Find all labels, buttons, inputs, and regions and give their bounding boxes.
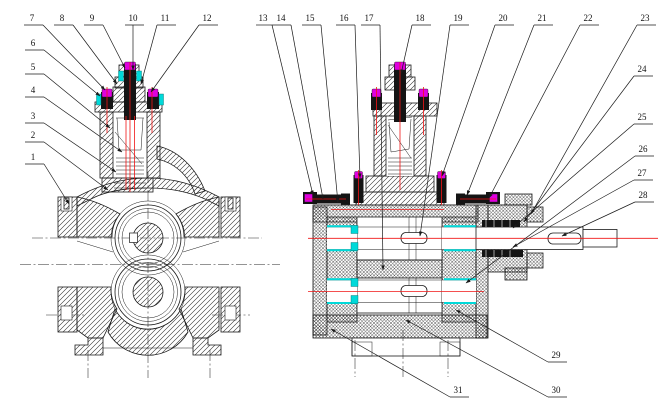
side-plug-left	[303, 192, 350, 205]
callout-15: 15	[302, 13, 338, 203]
callout-10: 10	[125, 13, 144, 70]
side-section-view	[303, 62, 658, 377]
callout-20: 20	[442, 13, 514, 176]
callout-14: 14	[272, 13, 323, 199]
bottom-wall	[313, 315, 487, 338]
seal-ring	[351, 226, 358, 234]
callout-31-label: 31	[454, 385, 463, 395]
callout-24-label: 24	[638, 64, 648, 74]
callout-27-label: 27	[638, 168, 648, 178]
callout-25-label: 25	[638, 112, 648, 122]
seal-ring	[351, 243, 358, 251]
callout-5-label: 5	[31, 62, 36, 72]
callout-2-label: 2	[31, 130, 36, 140]
callout-13: 13	[256, 13, 313, 195]
relief-valve-left	[95, 62, 205, 194]
callout-19-label: 19	[454, 13, 464, 23]
callout-8: 8	[54, 13, 117, 84]
callout-17-label: 17	[365, 13, 375, 23]
right-foot	[193, 338, 221, 355]
callout-2: 2	[25, 130, 108, 190]
callout-13-label: 13	[259, 13, 269, 23]
callout-30-label: 30	[552, 385, 562, 395]
callout-3-label: 3	[31, 111, 36, 121]
callout-15-label: 15	[306, 13, 316, 23]
driven-shaft-section	[133, 277, 163, 307]
callout-7-label: 7	[30, 13, 35, 23]
callout-10-label: 10	[129, 13, 139, 23]
seal-ring	[351, 279, 358, 287]
callout-29-label: 29	[552, 350, 562, 360]
shaft-key	[130, 233, 138, 243]
callout-14-label: 14	[277, 13, 287, 23]
relief-valve-right	[354, 62, 447, 205]
callout-23-label: 23	[641, 13, 651, 23]
callout-28-label: 28	[639, 190, 649, 200]
callout-16: 16	[336, 13, 360, 178]
callout-20-label: 20	[499, 13, 509, 23]
callout-9-label: 9	[90, 13, 95, 23]
driven-gear-side	[357, 278, 442, 313]
callout-8-label: 8	[60, 13, 65, 23]
left-foot	[75, 338, 103, 355]
callout-12-label: 12	[203, 13, 212, 23]
front-section-view	[20, 62, 280, 378]
callout-6-label: 6	[31, 38, 36, 48]
seal-ring	[351, 296, 358, 304]
side-plug-right	[456, 192, 500, 205]
callout-22-label: 22	[584, 13, 593, 23]
callout-26-label: 26	[639, 144, 649, 154]
callout-21-label: 21	[538, 13, 547, 23]
callout-24: 24	[524, 64, 653, 222]
callout-11: 11	[141, 13, 176, 84]
callout-11-label: 11	[161, 13, 170, 23]
gear-keyway-lower	[401, 286, 427, 297]
callout-22: 22	[489, 13, 599, 198]
gland-flange-bottom	[527, 253, 543, 268]
gear-pump-sectional-drawing: 1 2 3 4 5 6 7 8 9 10 11 12 13 14 15 16 1…	[0, 0, 669, 409]
callout-21: 21	[467, 13, 553, 195]
callout-4-label: 4	[31, 85, 36, 95]
drawing-canvas: 1 2 3 4 5 6 7 8 9 10 11 12 13 14 15 16 1…	[0, 0, 669, 409]
callout-16-label: 16	[340, 13, 350, 23]
callout-1-label: 1	[31, 152, 36, 162]
callout-18-label: 18	[416, 13, 426, 23]
callout-1: 1	[25, 152, 69, 204]
callout-9: 9	[84, 13, 125, 68]
